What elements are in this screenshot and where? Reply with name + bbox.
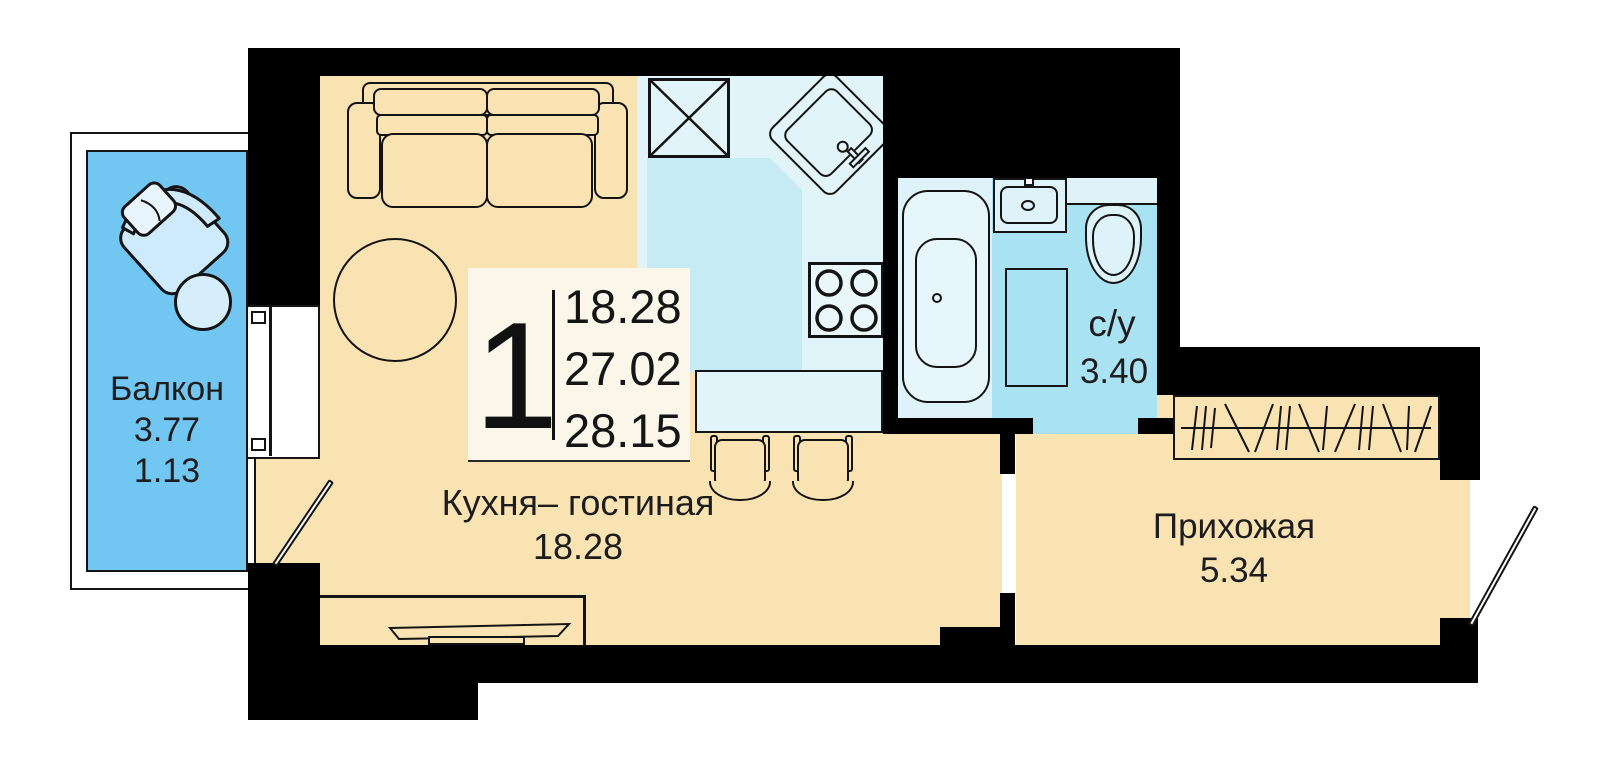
coffee-table (333, 238, 457, 362)
kitchen-living-label: Кухня– гостиная (442, 482, 715, 524)
wall (1440, 395, 1480, 480)
legend-room-count: 1 (474, 300, 559, 452)
balcony-area-full: 3.77 (134, 411, 200, 450)
legend-divider (552, 290, 555, 440)
wall (1000, 434, 1015, 474)
wall (1157, 178, 1180, 347)
niche-ledge-line (583, 595, 586, 645)
balcony-area-reduced: 1.13 (134, 452, 200, 491)
wardrobe (1173, 395, 1440, 460)
bathroom-sink (993, 178, 1067, 233)
bathroom-area: 3.40 (1080, 352, 1148, 392)
wall (883, 178, 898, 420)
appliance-slot-x (648, 78, 730, 158)
sofa (345, 80, 630, 210)
bathroom-label: с/у (1088, 303, 1135, 345)
legend-card: 1 18.28 27.02 28.15 (468, 268, 690, 462)
wall (940, 627, 1007, 645)
wall (883, 418, 1033, 434)
kitchen-living-area: 18.28 (533, 526, 623, 568)
window (246, 305, 320, 459)
entry-door (1468, 505, 1539, 627)
legend-living-area: 18.28 (564, 276, 682, 338)
stove (808, 262, 884, 338)
niche-ledge-line (320, 595, 585, 598)
hallway-area: 5.34 (1200, 551, 1268, 591)
wall (1157, 347, 1480, 395)
wall (478, 645, 1478, 683)
wall (248, 645, 478, 720)
floor-plan: 1 18.28 27.02 28.15 Балкон 3.77 1.13 Кух… (0, 0, 1600, 762)
shower-tray (1005, 268, 1068, 387)
wall (248, 48, 883, 76)
dining-chair (710, 433, 772, 505)
wall (883, 48, 1180, 178)
dining-chair (793, 433, 855, 505)
legend-total-area: 28.15 (564, 400, 682, 462)
kitchen-table (695, 370, 883, 433)
toilet (1085, 178, 1143, 288)
legend-apartment-area: 27.02 (564, 338, 682, 400)
balcony-label: Балкон (110, 370, 224, 409)
balcony-table (174, 273, 232, 331)
hallway-label: Прихожая (1153, 507, 1315, 547)
wall (1138, 418, 1173, 434)
wall (248, 48, 320, 307)
bathtub (902, 190, 990, 403)
